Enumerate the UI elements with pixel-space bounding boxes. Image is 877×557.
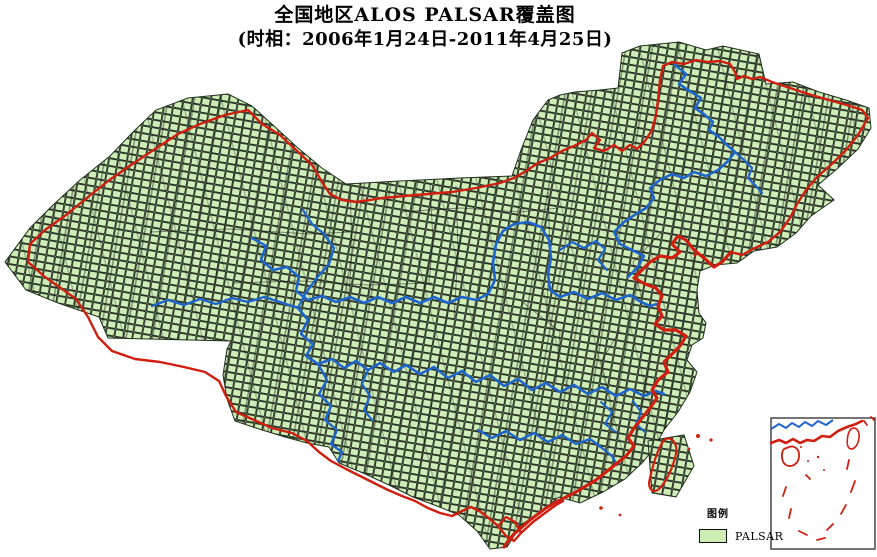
legend-label: PALSAR	[735, 530, 783, 543]
coverage-area-taiwan	[648, 435, 694, 497]
map-title: 全国地区ALOS PALSAR覆盖图	[0, 3, 850, 28]
legend-item-palsar: PALSAR	[699, 529, 783, 543]
palsar-coverage-map-page: 全国地区ALOS PALSAR覆盖图 (时相：2006年1月24日-2011年4…	[0, 0, 877, 557]
map-title-block: 全国地区ALOS PALSAR覆盖图 (时相：2006年1月24日-2011年4…	[0, 3, 850, 52]
china-coverage-map	[0, 0, 877, 557]
legend-swatch-icon	[699, 529, 728, 543]
map-subtitle: (时相：2006年1月24日-2011年4月25日)	[0, 28, 850, 52]
coverage-layer	[5, 42, 871, 549]
south-china-sea-inset	[771, 417, 875, 549]
legend-heading: 图例	[707, 505, 783, 520]
legend: 图例 PALSAR	[699, 505, 783, 543]
coverage-area-mainland-crossstrips	[5, 42, 871, 549]
legend-swatch	[700, 530, 727, 543]
